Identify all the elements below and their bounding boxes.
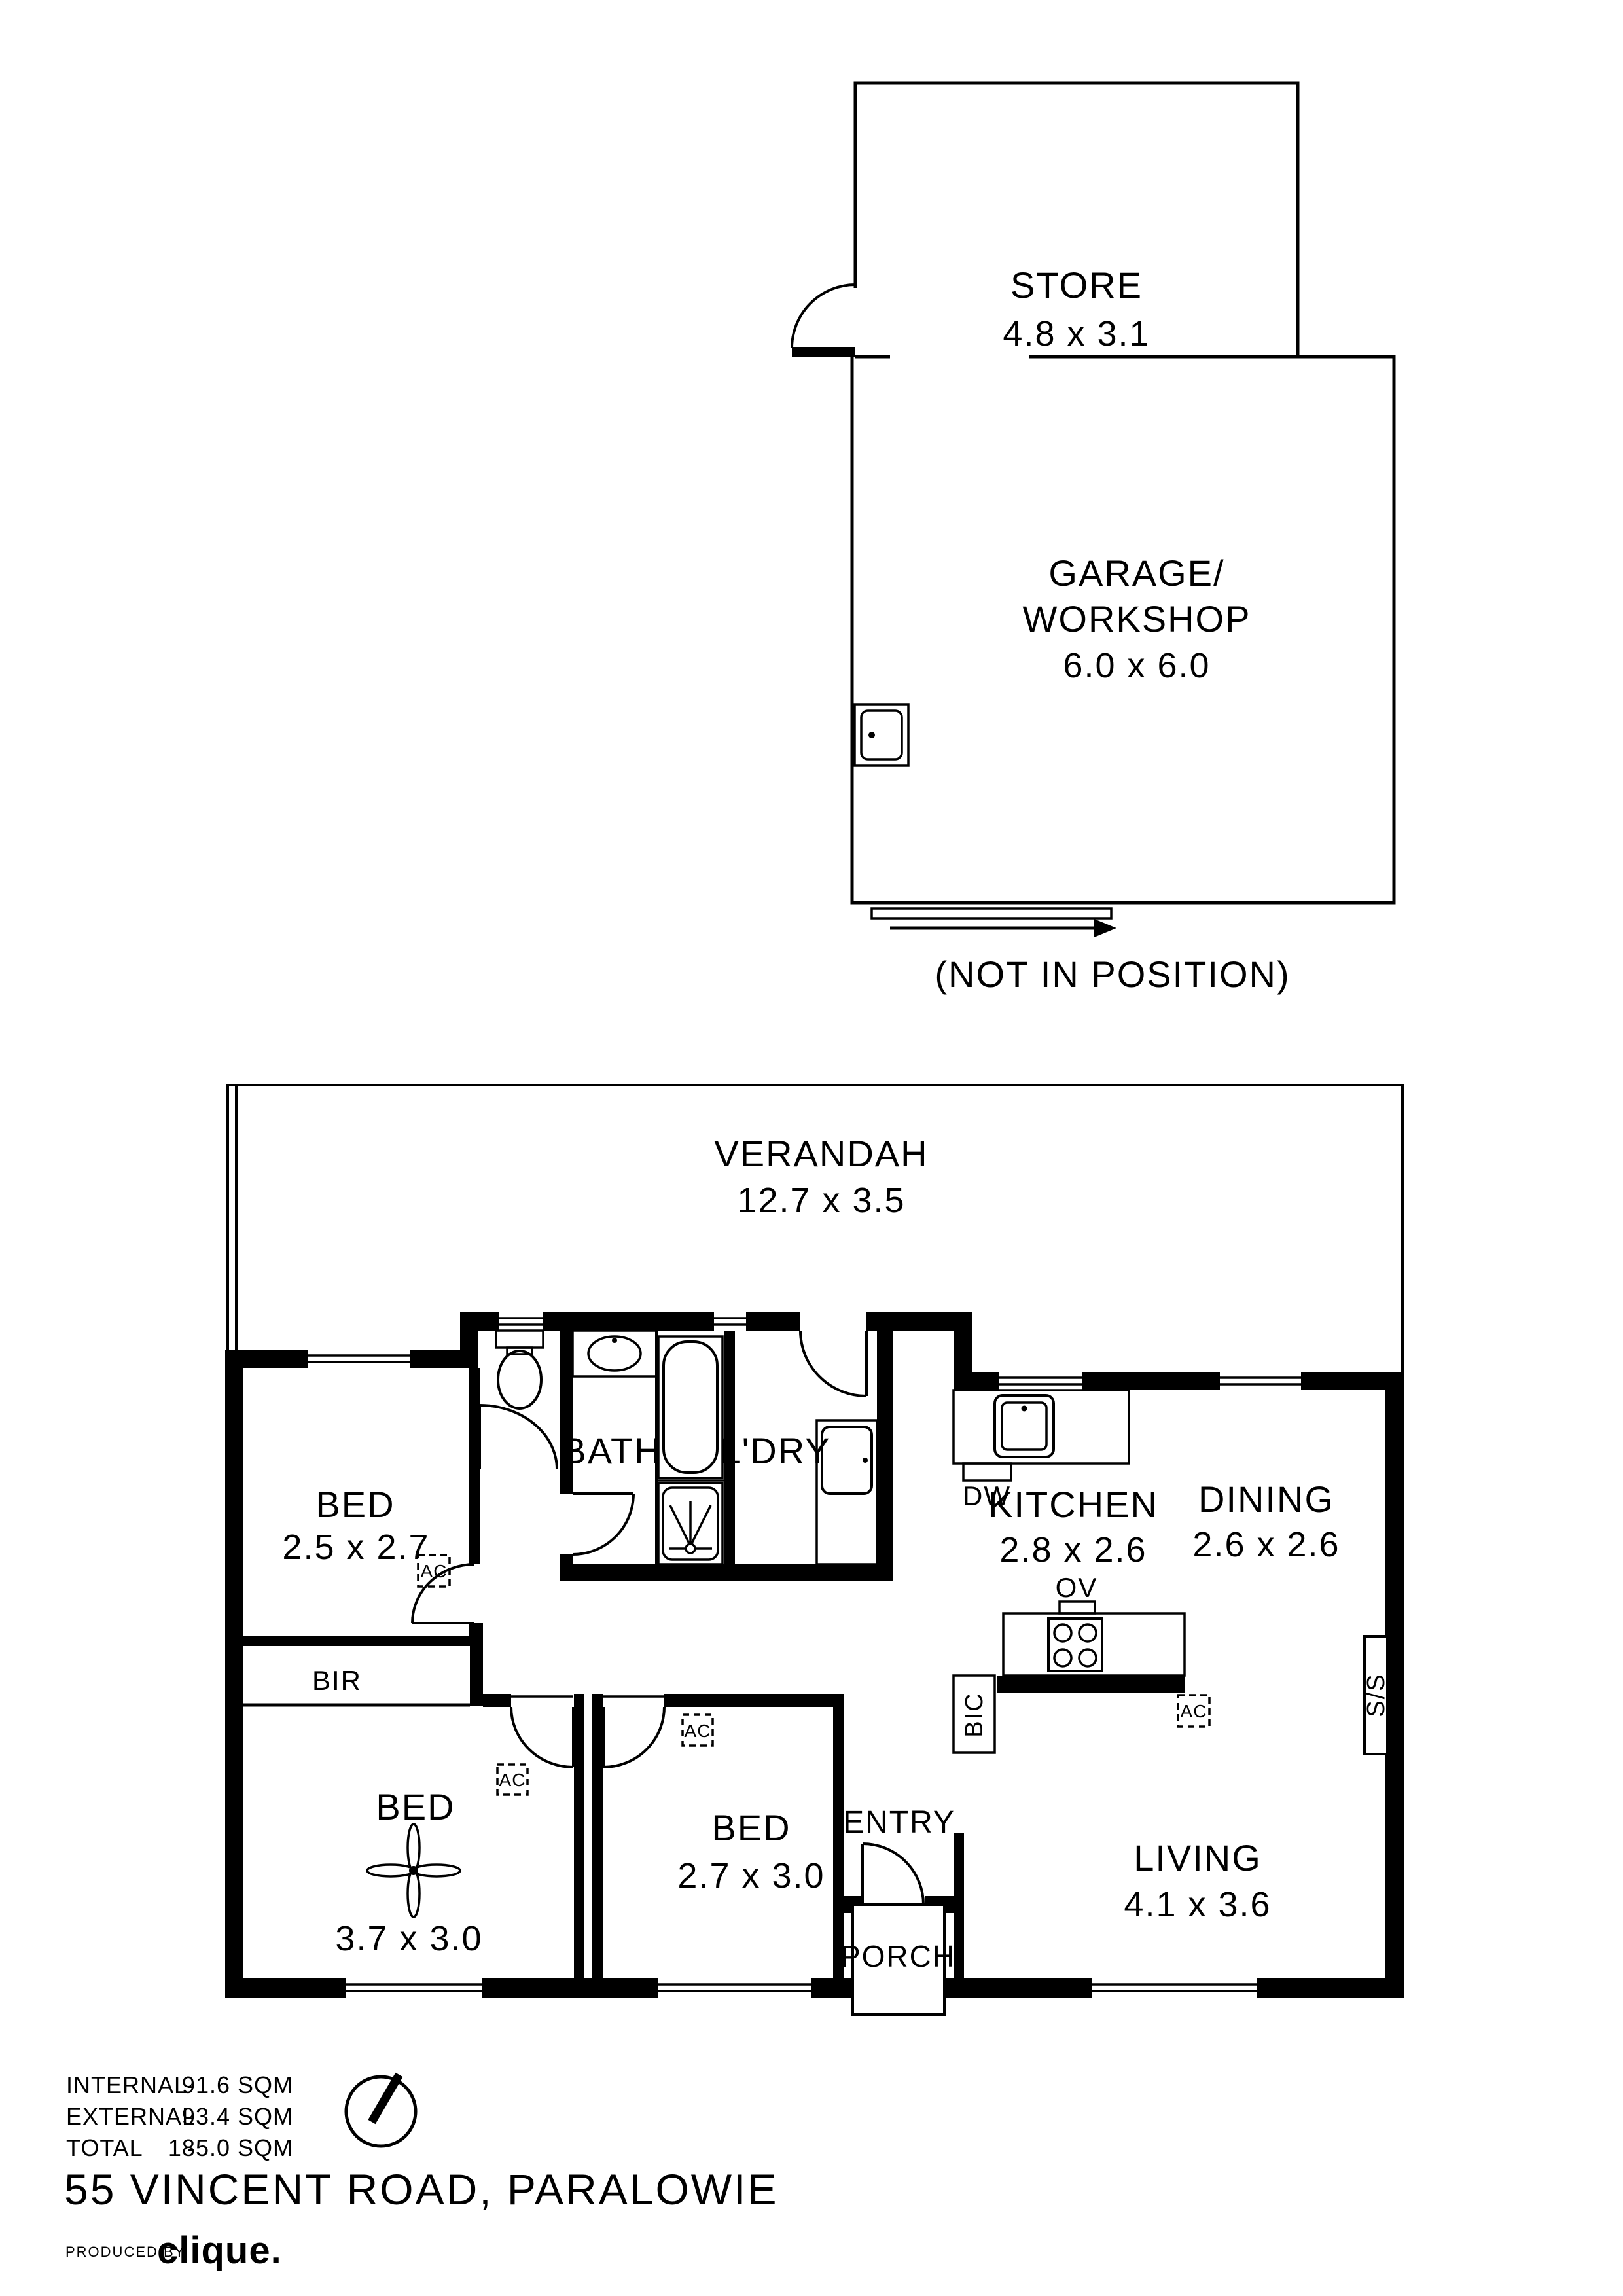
ac-unit-living: AC bbox=[1178, 1695, 1209, 1727]
top-wall-step-left bbox=[460, 1312, 478, 1368]
garage-label-line1: GARAGE/ bbox=[1048, 552, 1224, 594]
bed1-bottom-wall bbox=[236, 1636, 470, 1646]
floorplan-drawing: STORE 4.8 x 3.1 GARAGE/ WORKSHOP 6.0 x 6… bbox=[0, 0, 1623, 2296]
window-bath-top bbox=[714, 1312, 746, 1331]
stove-bench bbox=[1003, 1613, 1185, 1676]
living-label: LIVING bbox=[1133, 1837, 1262, 1878]
store-door-leaf bbox=[792, 347, 855, 357]
vanity-tap-icon bbox=[612, 1338, 617, 1343]
ac-label: AC bbox=[685, 1721, 711, 1741]
window-wc-top bbox=[499, 1312, 543, 1331]
floorplan-page: STORE 4.8 x 3.1 GARAGE/ WORKSHOP 6.0 x 6… bbox=[0, 0, 1623, 2296]
laundry-right-wall bbox=[877, 1312, 893, 1581]
hall-wall-right-seg bbox=[664, 1694, 833, 1707]
wc-door bbox=[480, 1405, 557, 1469]
garage-dims: 6.0 x 6.0 bbox=[1063, 646, 1210, 685]
bed2-label: BED bbox=[376, 1786, 455, 1827]
oven-label: OV bbox=[1056, 1572, 1098, 1603]
bir-right-stub bbox=[470, 1636, 483, 1706]
wc-fixtures bbox=[496, 1331, 543, 1408]
bed1-dims: 2.5 x 2.7 bbox=[282, 1528, 429, 1567]
dining-label: DINING bbox=[1198, 1479, 1334, 1520]
window-dining-top bbox=[1220, 1372, 1301, 1390]
bed3-door bbox=[603, 1707, 664, 1767]
store-label: STORE bbox=[1010, 264, 1143, 306]
bathtub-icon bbox=[664, 1342, 717, 1473]
window-bed2-bottom bbox=[346, 1978, 482, 1998]
verandah-dims: 12.7 x 3.5 bbox=[737, 1181, 905, 1220]
living-dims: 4.1 x 3.6 bbox=[1124, 1885, 1271, 1924]
bed1-right-wall bbox=[469, 1368, 480, 1564]
bath-laundry-bottom-wall bbox=[560, 1564, 893, 1581]
window-living-bottom bbox=[1092, 1978, 1257, 1998]
laundry-label: L'DRY bbox=[720, 1430, 830, 1471]
dishwasher-box bbox=[963, 1463, 1011, 1480]
entry-label: ENTRY bbox=[843, 1805, 955, 1840]
kitchen-sink-tap-icon bbox=[1022, 1406, 1027, 1412]
ac-unit-bed3: AC bbox=[683, 1715, 713, 1746]
brand-logo: clique. bbox=[157, 2229, 282, 2272]
garage-label-line2: WORKSHOP bbox=[1023, 598, 1251, 639]
compass-icon bbox=[346, 2075, 416, 2146]
bir-label: BIR bbox=[312, 1665, 362, 1696]
kitchen-fixtures: DW OV BIC bbox=[954, 1390, 1185, 1753]
bed-divider-wall-right bbox=[592, 1694, 603, 1978]
window-bed1-top bbox=[308, 1350, 410, 1368]
store-dims: 4.8 x 3.1 bbox=[1003, 314, 1150, 353]
shower-icon bbox=[658, 1483, 722, 1564]
not-in-position-note: (NOT IN POSITION) bbox=[935, 954, 1290, 995]
kitchen-dims: 2.8 x 2.6 bbox=[999, 1530, 1147, 1570]
summary-total-label: TOTAL bbox=[66, 2134, 143, 2161]
garage-door-arrow-head-icon bbox=[1094, 919, 1116, 937]
hall-wall-left-seg bbox=[483, 1694, 511, 1707]
area-summary: INTERNAL - 91.6 SQM EXTERNAL - 93.4 SQM … bbox=[66, 2072, 293, 2161]
bed1-label: BED bbox=[315, 1484, 395, 1525]
dining-dims: 2.6 x 2.6 bbox=[1192, 1525, 1340, 1564]
ac-label: AC bbox=[1181, 1701, 1207, 1721]
page-title: 55 VINCENT ROAD, PARALOWIE bbox=[64, 2165, 778, 2214]
kitchen-bench bbox=[954, 1390, 1129, 1463]
kitchen-island-wall bbox=[997, 1676, 1185, 1693]
bath-door bbox=[573, 1494, 633, 1554]
store-door-arc bbox=[792, 285, 855, 348]
oven-box bbox=[1060, 1602, 1095, 1613]
garage-door-rail bbox=[872, 908, 1111, 918]
window-bed3-bottom bbox=[658, 1978, 811, 1998]
summary-total-value: 185.0 SQM bbox=[168, 2134, 293, 2161]
porch: PORCH bbox=[840, 1896, 955, 2015]
window-kitchen-top bbox=[999, 1372, 1082, 1390]
bed2-dims: 3.7 x 3.0 bbox=[335, 1919, 482, 1958]
laundry-trough-tap-icon bbox=[863, 1458, 868, 1463]
back-door-opening bbox=[800, 1312, 866, 1331]
summary-internal-label: INTERNAL bbox=[66, 2072, 188, 2098]
entry-door bbox=[863, 1844, 923, 1905]
ac-unit-bed2: AC bbox=[497, 1765, 527, 1795]
cooktop-icon bbox=[1048, 1619, 1102, 1671]
porch-label: PORCH bbox=[840, 1939, 955, 1973]
garage-workshop-room: GARAGE/ WORKSHOP 6.0 x 6.0 (NOT IN POSIT… bbox=[852, 357, 1394, 995]
ss-label: S/S bbox=[1363, 1673, 1390, 1717]
bed2-door bbox=[511, 1707, 573, 1767]
summary-external-value: 93.4 SQM bbox=[182, 2103, 293, 2130]
ac-label: AC bbox=[499, 1770, 526, 1790]
store-room: STORE 4.8 x 3.1 bbox=[792, 83, 1298, 357]
garage-sink-icon bbox=[855, 704, 908, 766]
bed3-dims: 2.7 x 3.0 bbox=[677, 1856, 825, 1895]
bath-door-stub bbox=[560, 1554, 573, 1564]
left-wall bbox=[225, 1350, 243, 1998]
summary-internal-value: 91.6 SQM bbox=[182, 2072, 293, 2098]
toilet-bowl-icon bbox=[498, 1351, 541, 1408]
bic-label: BIC bbox=[961, 1692, 988, 1737]
bathtub-surround bbox=[658, 1336, 722, 1478]
kitchen-label: KITCHEN bbox=[988, 1484, 1158, 1525]
summary-external-label: EXTERNAL bbox=[66, 2103, 196, 2130]
bed-divider-wall-left bbox=[574, 1694, 584, 1978]
bath-label: BATH bbox=[562, 1430, 662, 1471]
back-door bbox=[800, 1331, 866, 1396]
toilet-cistern-icon bbox=[496, 1331, 543, 1348]
ss-unit: S/S bbox=[1363, 1636, 1390, 1754]
bed3-label: BED bbox=[711, 1807, 791, 1848]
ceiling-fan-icon bbox=[367, 1824, 460, 1917]
verandah-label: VERANDAH bbox=[714, 1133, 928, 1174]
